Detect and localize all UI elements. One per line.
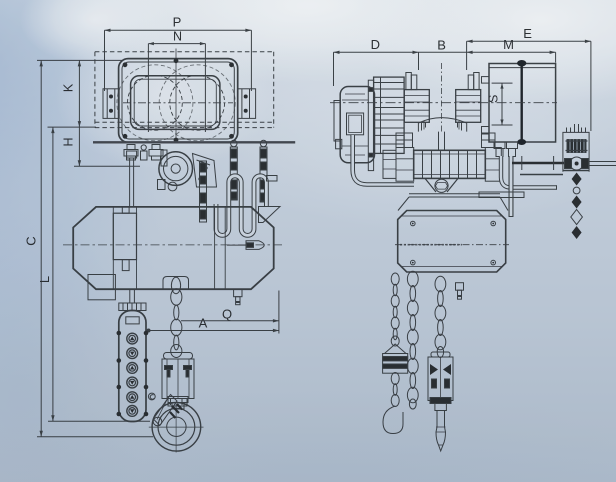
svg-text:E: E (523, 26, 532, 41)
svg-text:H: H (62, 137, 76, 146)
svg-text:Q: Q (222, 306, 232, 321)
svg-text:A: A (199, 316, 208, 331)
svg-text:B: B (437, 38, 446, 53)
svg-text:C: C (23, 236, 38, 245)
svg-text:D: D (371, 37, 380, 52)
svg-text:P: P (173, 15, 182, 30)
svg-text:M: M (503, 37, 514, 52)
svg-text:N: N (173, 30, 182, 44)
svg-text:L: L (37, 276, 52, 283)
svg-text:K: K (62, 83, 76, 92)
